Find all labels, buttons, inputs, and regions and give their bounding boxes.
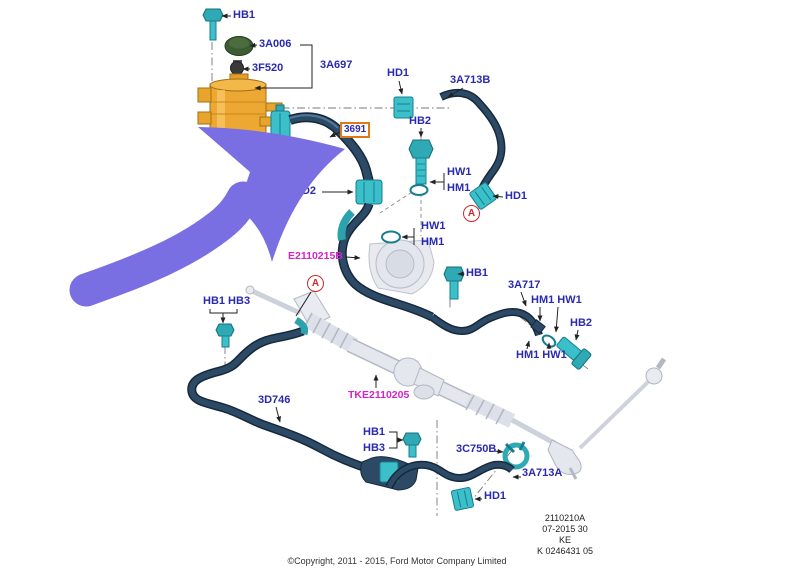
stamp-doc-number: 2110210A [505,513,625,524]
part-label-hb1-top[interactable]: HB1 [233,10,255,21]
stamp-doc-date: 07-2015 30 [505,524,625,535]
part-label-3c750b[interactable]: 3C750B [456,444,496,455]
hose-3a717 [432,312,545,335]
part-label-3d746[interactable]: 3D746 [258,395,290,406]
part-label-hm1-hw1-bot[interactable]: HM1 HW1 [516,350,567,361]
bolt-hb1-mid [444,267,464,299]
highlighted-part-3691[interactable]: 3691 [340,122,370,138]
copyright-line: ©Copyright, 2011 - 2015, Ford Motor Comp… [0,556,794,566]
part-label-3a713b[interactable]: 3A713B [450,75,490,86]
part-label-hd1-bot[interactable]: HD1 [484,491,506,502]
part-label-hd1-mid[interactable]: HD1 [505,191,527,202]
part-label-hb1-hb3[interactable]: HB1 HB3 [203,296,250,307]
part-label-hb2-mid[interactable]: HB2 [409,116,431,127]
part-label-3a006[interactable]: 3A006 [259,39,291,50]
clamp-hd2 [356,180,382,204]
ref-label-tke2110205[interactable]: TKE2110205 [348,390,409,401]
part-label-hb1-bot[interactable]: HB1 [363,427,385,438]
parts-diagram: HB1 3A006 3F520 3A697 HD1 3A713B 3691 HB… [0,0,794,580]
part-label-hd1-top[interactable]: HD1 [387,68,409,79]
bolt-hb1-hb3-left [216,324,234,347]
view-callout-a-1: A [463,205,480,222]
washer-hw1-1 [411,185,428,195]
part-label-hb3-bot[interactable]: HB3 [363,443,385,454]
clamp-hd1-bottom [451,487,474,511]
part-label-hm1-2[interactable]: HM1 [421,237,444,248]
part-label-3a713a[interactable]: 3A713A [522,468,562,479]
part-label-hd2[interactable]: HD2 [294,186,316,197]
part-label-hb2-right[interactable]: HB2 [570,318,592,329]
part-label-3f520[interactable]: 3F520 [252,63,283,74]
pump-ghost [369,240,434,294]
part-label-3a697[interactable]: 3A697 [320,60,352,71]
steering-rack-ghost [246,286,664,479]
washer-hw1-2 [382,232,400,243]
bolt-hb1-top [203,9,223,40]
stamp-doc-code: KE [505,535,625,546]
part-label-hm1-1[interactable]: HM1 [447,183,470,194]
part-label-hw1-1[interactable]: HW1 [447,167,471,178]
part-label-3a717[interactable]: 3A717 [508,280,540,291]
drawing-stamp: 2110210A 07-2015 30 KE K 0246431 05 [505,513,625,557]
diagram-art [0,0,794,580]
reservoir-cap [225,37,253,56]
view-callout-a-2: A [307,275,324,292]
part-label-hm1-hw1-top[interactable]: HM1 HW1 [531,295,582,306]
banjo-bolt-hb2-mid [409,140,433,184]
part-label-hb1-mid[interactable]: HB1 [466,268,488,279]
bolt-hb1-hb3-bottom [403,433,421,457]
ref-label-e2110215b[interactable]: E2110215B [288,251,343,262]
part-label-hw1-2[interactable]: HW1 [421,221,445,232]
fluid-reservoir [198,74,282,138]
reservoir-seal [231,60,244,75]
